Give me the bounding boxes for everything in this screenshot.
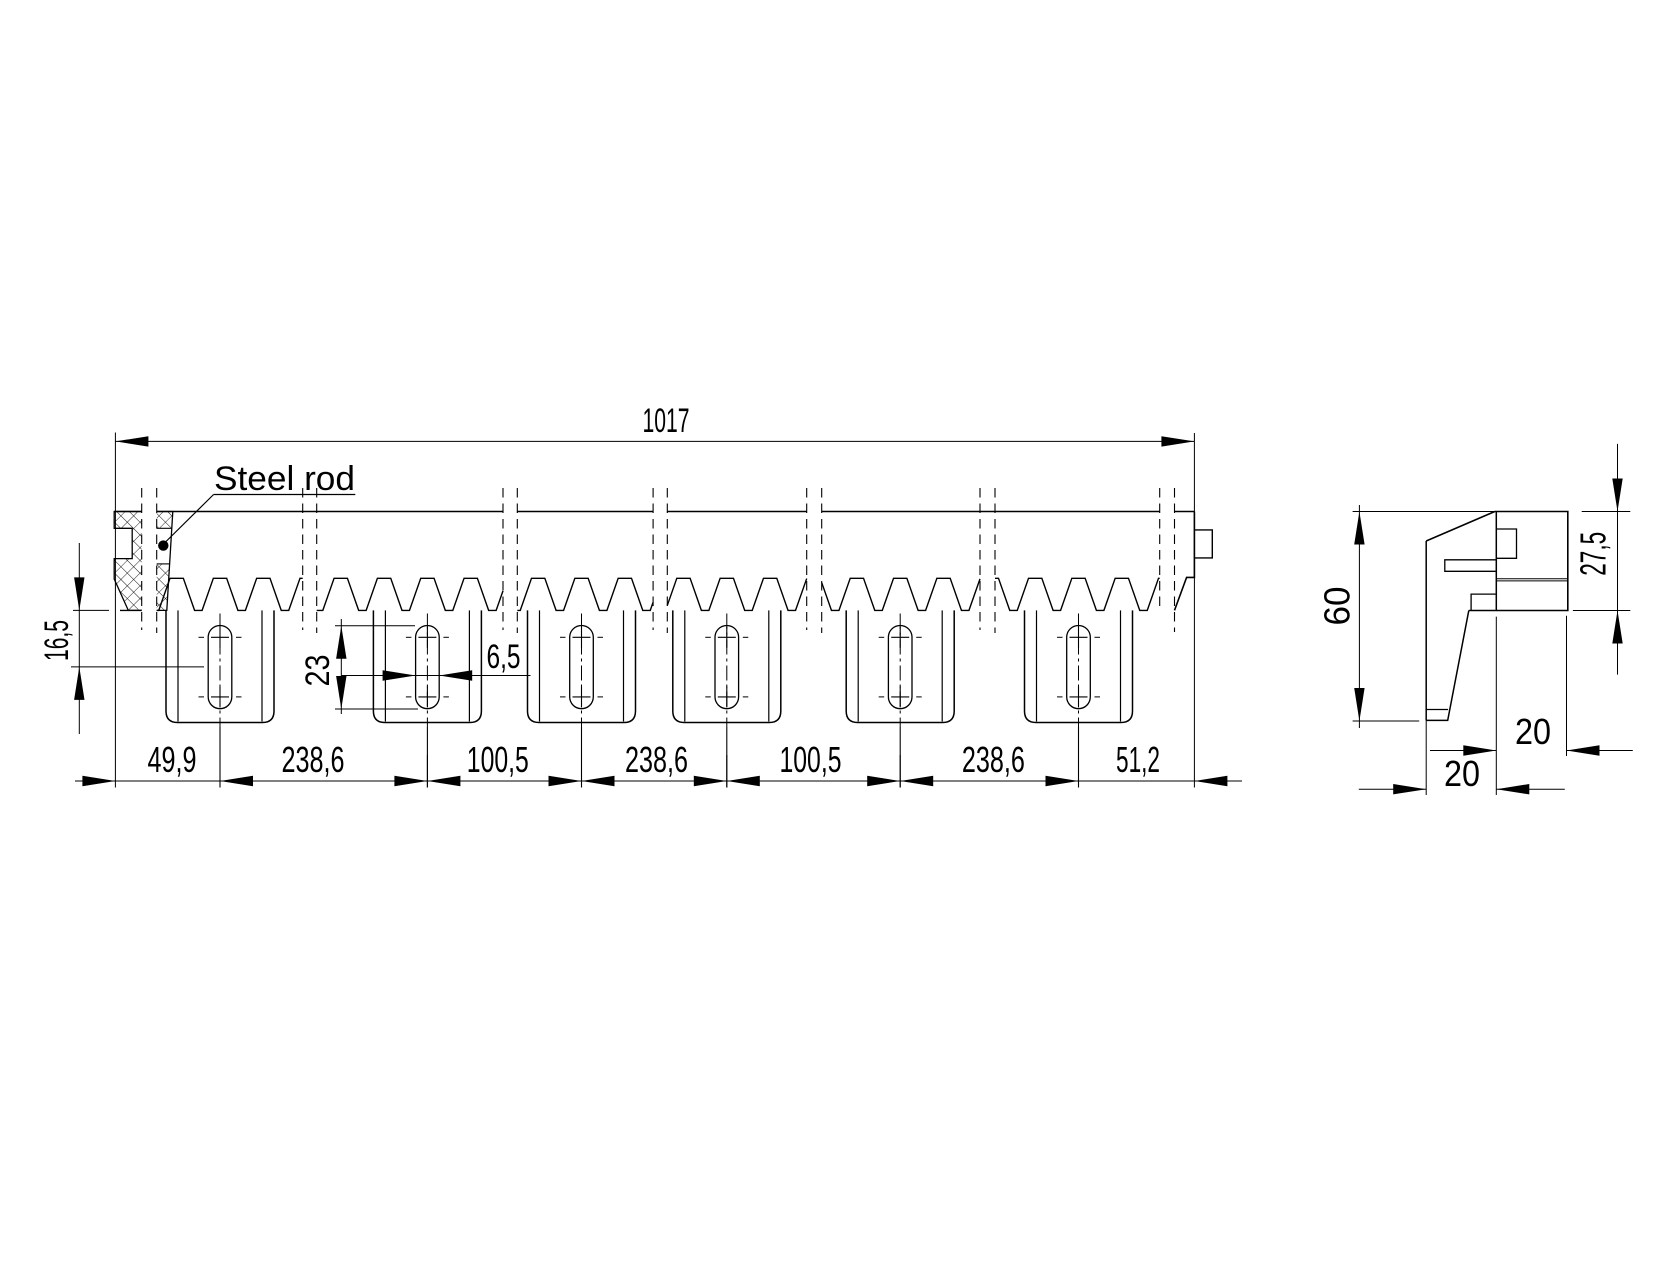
svg-text:20: 20 xyxy=(1444,753,1480,794)
svg-text:27,5: 27,5 xyxy=(1573,532,1614,576)
svg-text:20: 20 xyxy=(1515,711,1551,752)
svg-text:16,5: 16,5 xyxy=(38,620,76,661)
svg-text:238,6: 238,6 xyxy=(282,739,345,780)
svg-text:1017: 1017 xyxy=(643,402,690,440)
svg-text:Steel rod: Steel rod xyxy=(214,460,355,498)
svg-text:238,6: 238,6 xyxy=(625,739,688,780)
svg-text:6,5: 6,5 xyxy=(487,638,521,676)
svg-text:51,2: 51,2 xyxy=(1116,739,1160,780)
svg-text:238,6: 238,6 xyxy=(962,739,1025,780)
svg-text:100,5: 100,5 xyxy=(780,739,842,780)
svg-text:100,5: 100,5 xyxy=(467,739,529,780)
svg-text:23: 23 xyxy=(299,655,337,687)
svg-text:60: 60 xyxy=(1317,587,1358,626)
svg-text:49,9: 49,9 xyxy=(148,739,197,780)
